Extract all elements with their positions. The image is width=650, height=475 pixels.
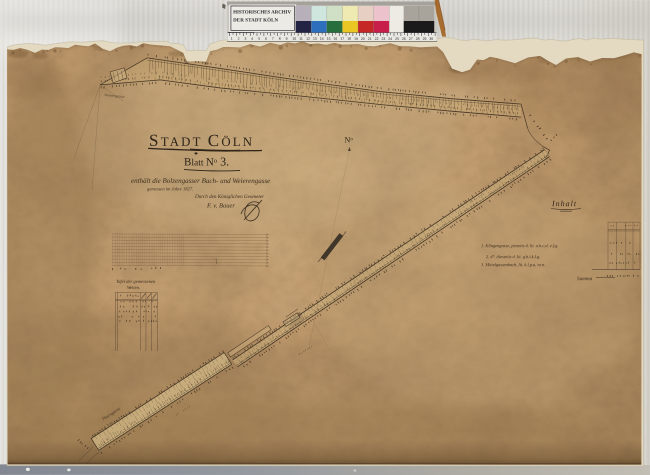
svg-text:Weiten.: Weiten.: [127, 285, 140, 290]
svg-text:2: 2: [238, 37, 240, 41]
svg-text:Durch den Königlichen Geometer: Durch den Königlichen Geometer: [194, 194, 264, 200]
svg-text:10: 10: [292, 37, 296, 41]
svg-text:28: 28: [416, 37, 420, 41]
svg-text:27: 27: [409, 37, 413, 41]
svg-text:14: 14: [320, 37, 324, 41]
svg-text:29: 29: [423, 37, 427, 41]
svg-text:1: 1: [231, 37, 233, 41]
svg-text:21: 21: [368, 37, 372, 41]
svg-text:30: 30: [429, 37, 433, 41]
svg-text:4: 4: [251, 37, 253, 41]
svg-text:Tafel der gemessenen: Tafel der gemessenen: [116, 279, 156, 284]
svg-text:25: 25: [395, 37, 399, 41]
svg-text:3: 3: [245, 37, 247, 41]
svg-text:13: 13: [313, 37, 317, 41]
svg-text:5: 5: [258, 37, 260, 41]
svg-text:20: 20: [361, 37, 365, 41]
svg-text:F. v. Bauer: F. v. Bauer: [206, 202, 235, 209]
svg-text:9: 9: [286, 37, 288, 41]
svg-text:7: 7: [272, 37, 274, 41]
svg-text:Blatt No 3.: Blatt No 3.: [184, 154, 229, 168]
svg-text:17: 17: [340, 37, 344, 41]
svg-text:12: 12: [306, 37, 310, 41]
svg-text:8: 8: [279, 37, 281, 41]
svg-text:24: 24: [388, 37, 392, 41]
svg-text:Summa: Summa: [577, 276, 593, 282]
svg-text:6: 6: [265, 37, 267, 41]
svg-text:2. d°. diesseits d. lit. g.h.i: 2. d°. diesseits d. lit. g.h.i.k.l.g.: [486, 254, 540, 259]
svg-text:23: 23: [382, 37, 386, 41]
svg-text:11: 11: [299, 37, 303, 41]
svg-text:DER STADT KÖLN: DER STADT KÖLN: [233, 17, 278, 23]
svg-text:enthält die Bolzengasser Bach-: enthält die Bolzengasser Bach- und Weier…: [131, 177, 270, 185]
svg-text:18: 18: [347, 37, 351, 41]
svg-text:16: 16: [334, 37, 338, 41]
svg-text:Inhalt: Inhalt: [551, 199, 577, 208]
svg-text:15: 15: [327, 37, 331, 41]
svg-text:26: 26: [402, 37, 406, 41]
svg-text:HISTORISCHES ARCHIV: HISTORISCHES ARCHIV: [233, 10, 291, 15]
svg-text:22: 22: [375, 37, 379, 41]
svg-text:19: 19: [354, 37, 358, 41]
svg-text:gemessen im Jahre 1827.: gemessen im Jahre 1827.: [147, 186, 193, 191]
